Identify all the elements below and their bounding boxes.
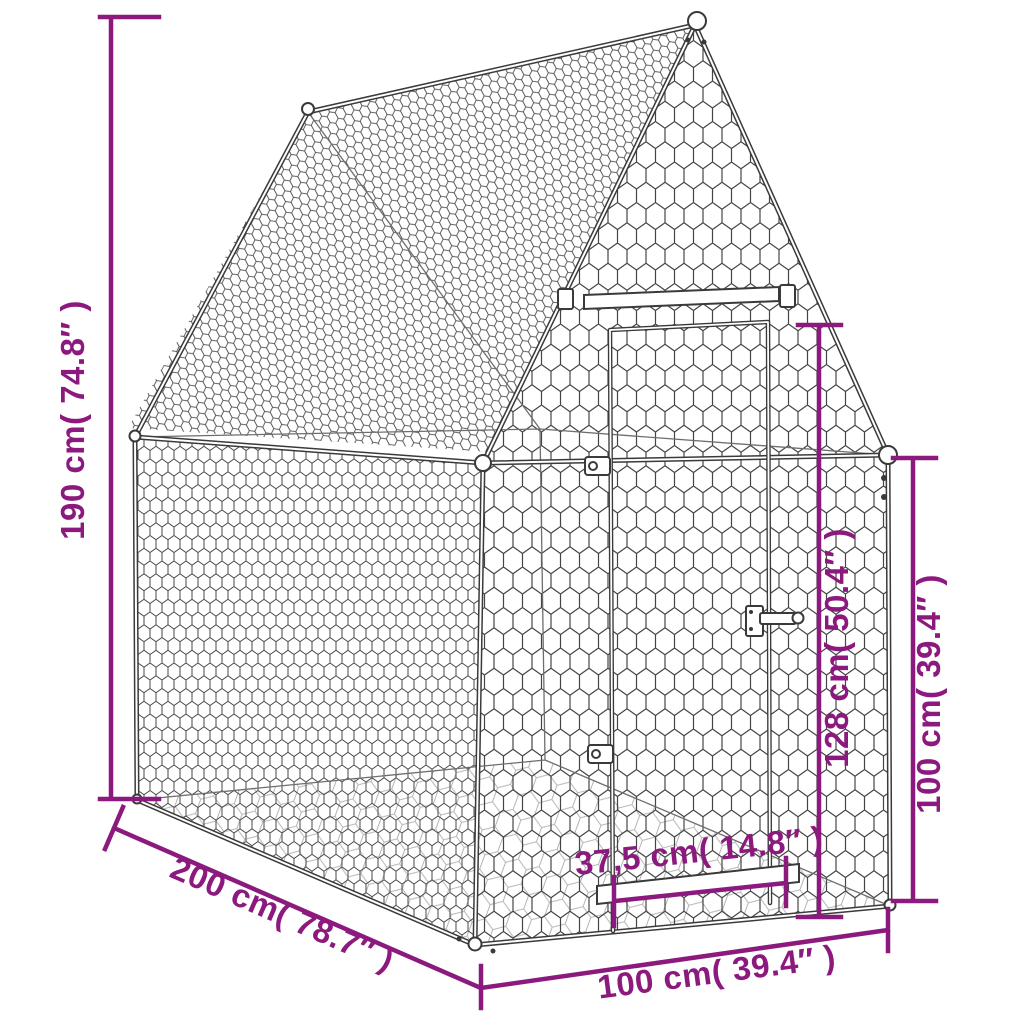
door-hinge-top [585, 457, 610, 475]
door-hinge-bottom [588, 745, 613, 763]
header-left-clamp [558, 289, 573, 309]
front-left-eave-connector [475, 455, 491, 471]
product-diagram-canvas: 190 cm( 74.8″ ) 200 cm( 78.7″ ) 100 cm( … [0, 0, 1024, 1024]
header-right-clamp [780, 285, 795, 307]
front-left-base-connector [469, 938, 482, 951]
dimension-label-front-width: 100 cm( 39.4″ ) [595, 938, 838, 1006]
front-apex-connector [688, 12, 706, 30]
chicken-run-diagram: 190 cm( 74.8″ ) 200 cm( 78.7″ ) 100 cm( … [0, 0, 1024, 1024]
back-apex-connector [302, 103, 314, 115]
back-left-eave-connector [130, 431, 141, 442]
front-right-eave-connector [879, 446, 897, 464]
mesh-faces [128, 25, 890, 945]
dimension-label-wall-height: 100 cm( 39.4″ ) [910, 574, 947, 814]
dimension-label-door-height: 128 cm( 50.4″ ) [818, 528, 855, 768]
dimension-label-total-height: 190 cm( 74.8″ ) [54, 300, 91, 540]
